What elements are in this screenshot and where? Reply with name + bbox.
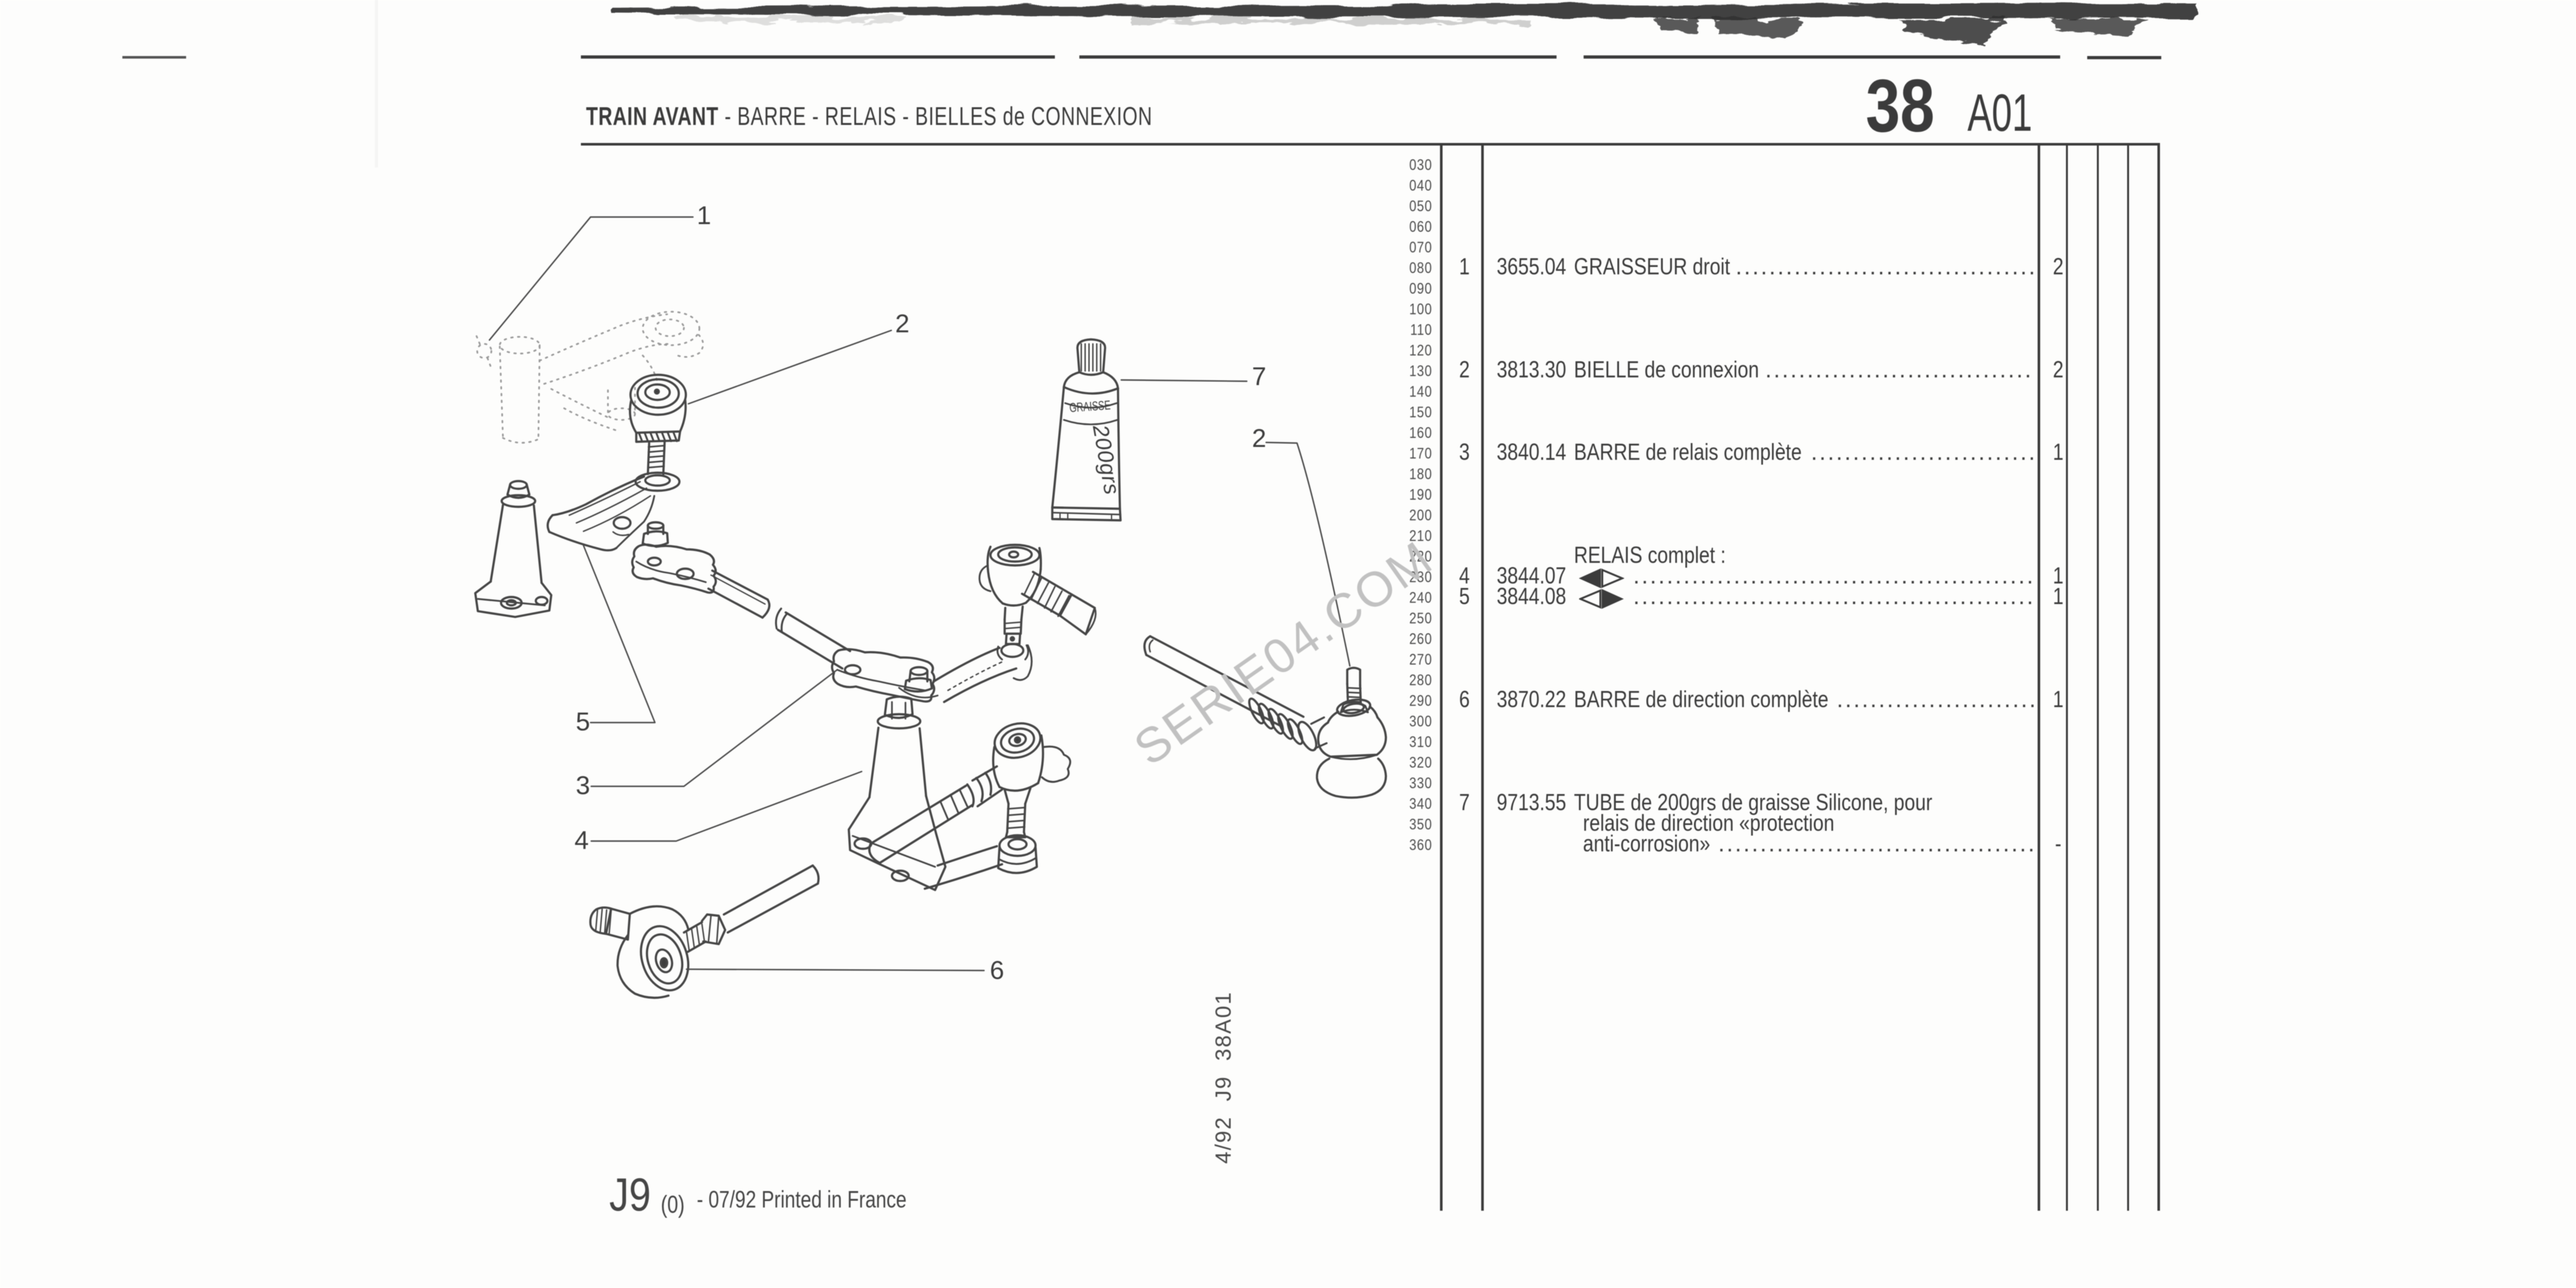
svg-text:2: 2 [895, 310, 909, 338]
svg-text:3: 3 [576, 772, 590, 800]
svg-text:5: 5 [576, 708, 590, 736]
svg-text:6: 6 [990, 956, 1004, 985]
svg-text:4: 4 [574, 826, 589, 855]
svg-text:2: 2 [1252, 424, 1266, 453]
svg-text:1: 1 [697, 202, 711, 230]
svg-text:7: 7 [1252, 363, 1266, 391]
svg-text:SERIE04.COM: SERIE04.COM [1124, 531, 1443, 777]
svg-text:GRAISSE: GRAISSE [1069, 399, 1111, 415]
